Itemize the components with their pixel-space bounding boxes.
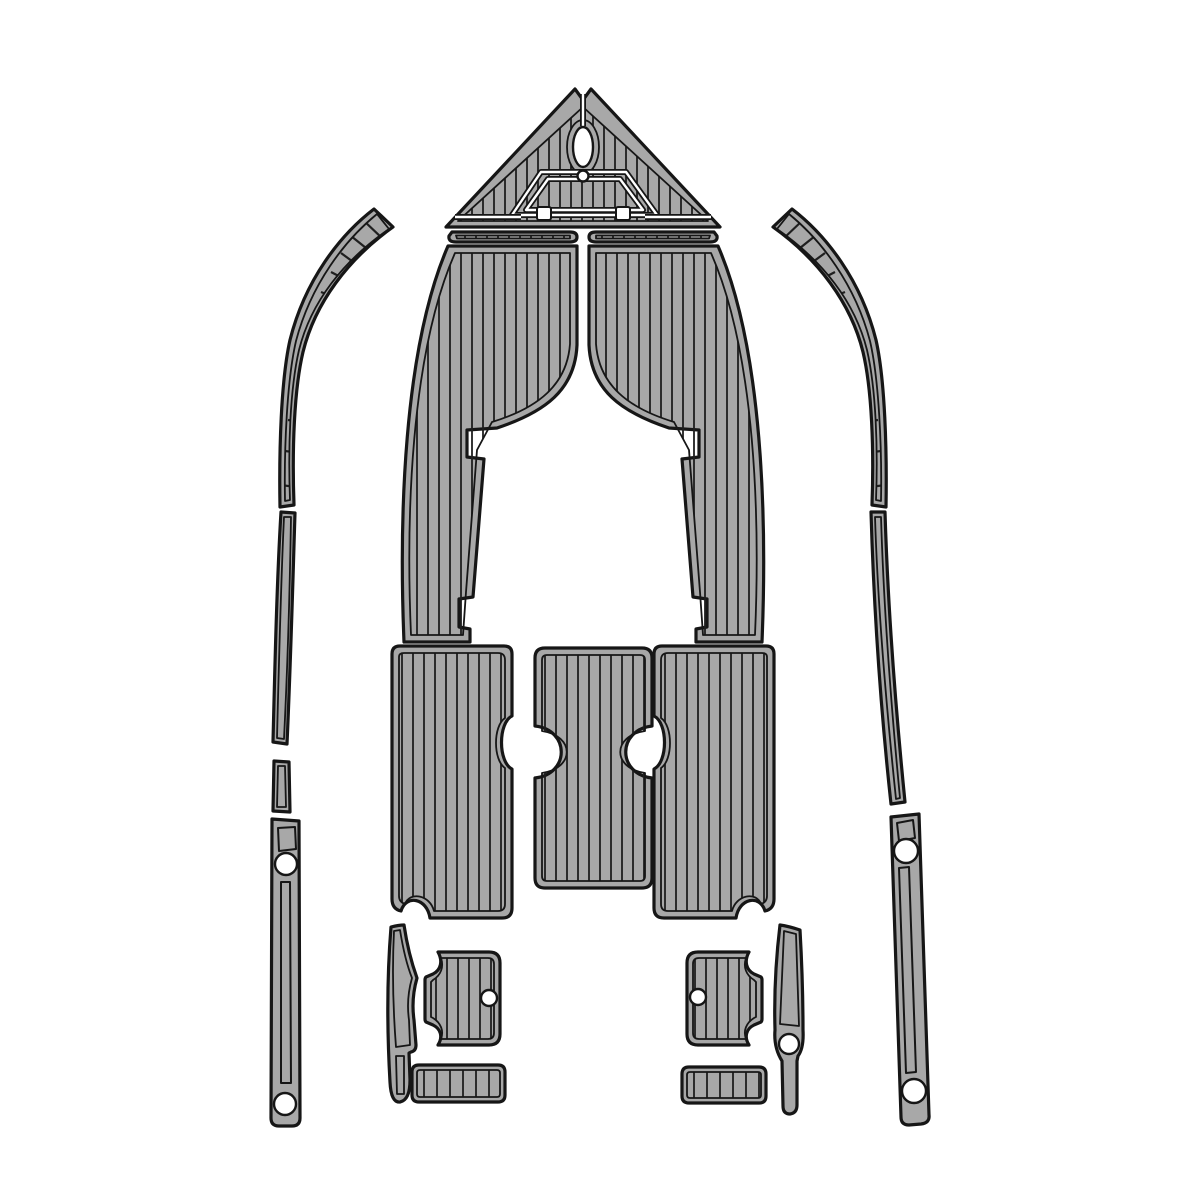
center-console-panel: [535, 648, 652, 888]
starboard-cockpit-panel: [589, 246, 764, 642]
starboard-transom-trim-strip: [891, 814, 929, 1125]
port-helm-bar: [412, 1065, 505, 1102]
bow-side-strip-starboard-outline: [589, 232, 717, 242]
bow-side-strip-starboard: [589, 230, 717, 244]
starboard-step-sliver: [775, 925, 803, 1114]
starboard-gunwale-mid-strip: [871, 512, 905, 804]
port-gunwale-short-strip-outline: [273, 761, 290, 812]
port-step-pad: [425, 952, 500, 1045]
bow-side-strip-port-outline: [449, 232, 577, 242]
bow-pad: [446, 85, 720, 227]
starboard-gunwale-bow-strip: [773, 209, 886, 507]
port-aft-floor-panel: [392, 646, 512, 918]
starboard-helm-bar: [682, 1067, 766, 1103]
port-gunwale-short-strip: [273, 761, 290, 812]
bow-side-strip-port: [449, 230, 577, 244]
port-cockpit-panel: [402, 246, 577, 642]
starboard-aft-floor-panel-outline: [654, 646, 774, 918]
pad-diagram: [0, 0, 1200, 1200]
port-gunwale-bow-strip: [280, 209, 393, 507]
port-gunwale-mid-strip-outline: [273, 512, 295, 744]
center-console-panel-outline: [535, 648, 652, 888]
port-transom-trim-strip: [271, 819, 300, 1126]
port-aft-floor-panel-outline: [392, 646, 512, 918]
port-gunwale-mid-strip: [273, 512, 295, 744]
starboard-aft-floor-panel: [654, 646, 774, 918]
starboard-step-pad: [687, 952, 762, 1045]
boat-decking-template-diagram: [0, 0, 1200, 1200]
